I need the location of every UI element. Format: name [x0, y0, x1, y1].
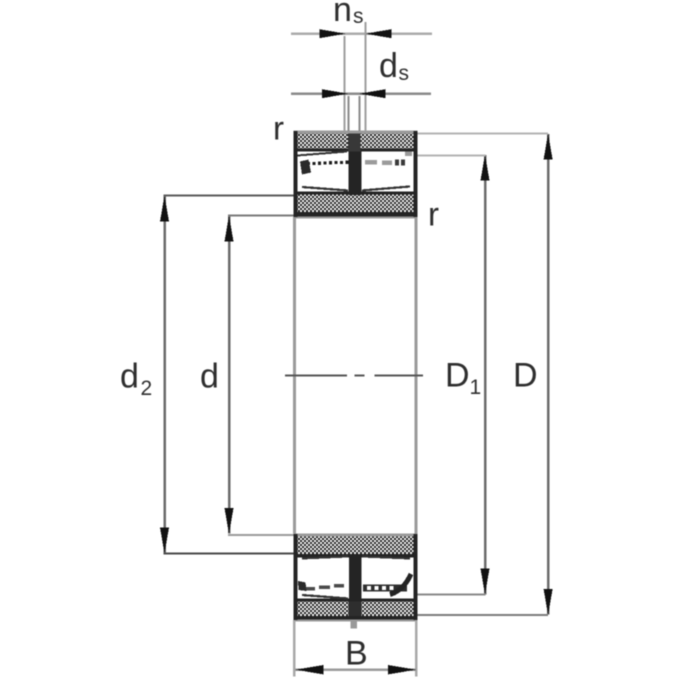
- svg-text:2: 2: [141, 377, 153, 400]
- svg-text:d: d: [379, 47, 398, 85]
- svg-text:s: s: [399, 62, 410, 85]
- svg-text:1: 1: [470, 376, 482, 399]
- svg-text:r: r: [428, 196, 439, 233]
- svg-text:B: B: [345, 635, 368, 673]
- svg-text:D: D: [513, 357, 538, 395]
- svg-text:n: n: [333, 0, 352, 29]
- svg-text:D: D: [445, 357, 470, 395]
- svg-text:d: d: [200, 358, 219, 396]
- svg-text:d: d: [120, 358, 139, 396]
- svg-text:r: r: [273, 110, 284, 147]
- svg-text:s: s: [353, 5, 364, 28]
